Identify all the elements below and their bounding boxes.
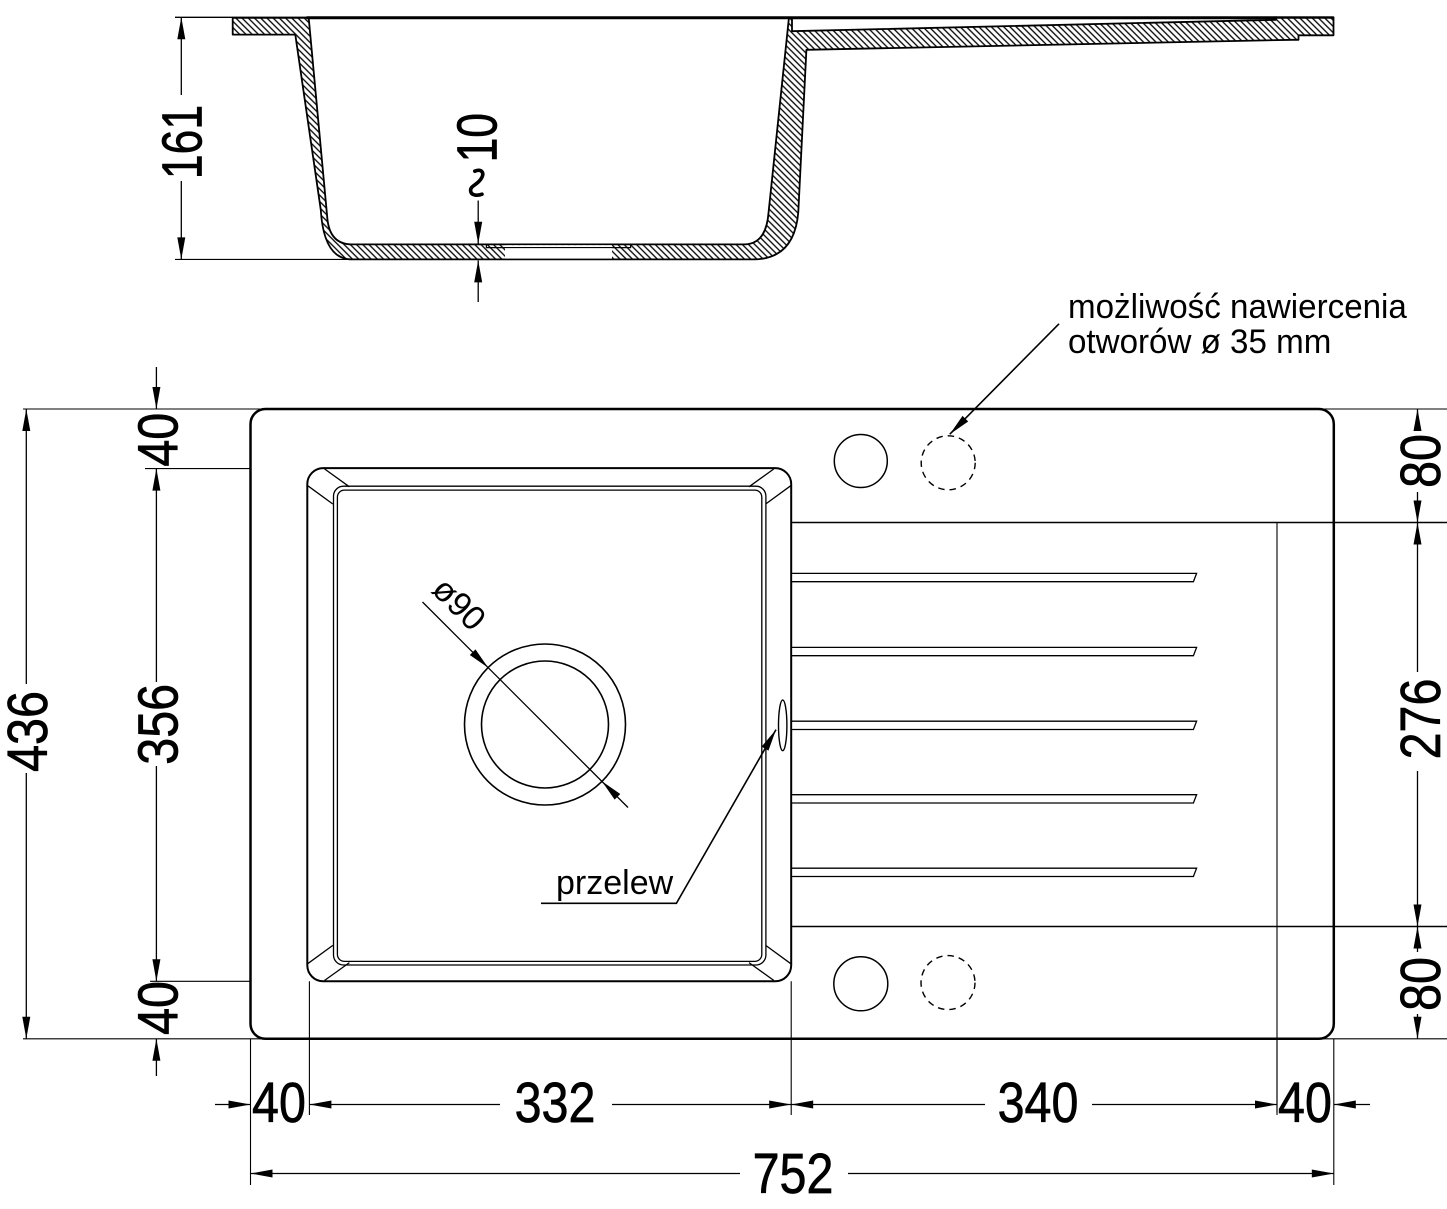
svg-text:332: 332: [515, 1071, 596, 1135]
svg-text:możliwość nawiercenia: możliwość nawiercenia: [1068, 289, 1407, 326]
svg-text:276: 276: [1389, 679, 1447, 760]
svg-text:356: 356: [127, 684, 191, 765]
svg-text:40: 40: [1278, 1071, 1332, 1135]
svg-text:40: 40: [127, 413, 191, 467]
svg-text:752: 752: [753, 1142, 834, 1206]
svg-text:80: 80: [1389, 434, 1447, 488]
svg-text:otworów ø 35 mm: otworów ø 35 mm: [1068, 324, 1331, 361]
svg-text:436: 436: [0, 691, 60, 772]
svg-text:40: 40: [252, 1071, 306, 1135]
svg-text:340: 340: [998, 1071, 1079, 1135]
svg-text:przelew: przelew: [556, 864, 674, 902]
svg-text:10: 10: [445, 113, 509, 162]
svg-text:40: 40: [127, 981, 191, 1035]
svg-text:161: 161: [150, 105, 214, 179]
svg-text:80: 80: [1389, 957, 1447, 1011]
